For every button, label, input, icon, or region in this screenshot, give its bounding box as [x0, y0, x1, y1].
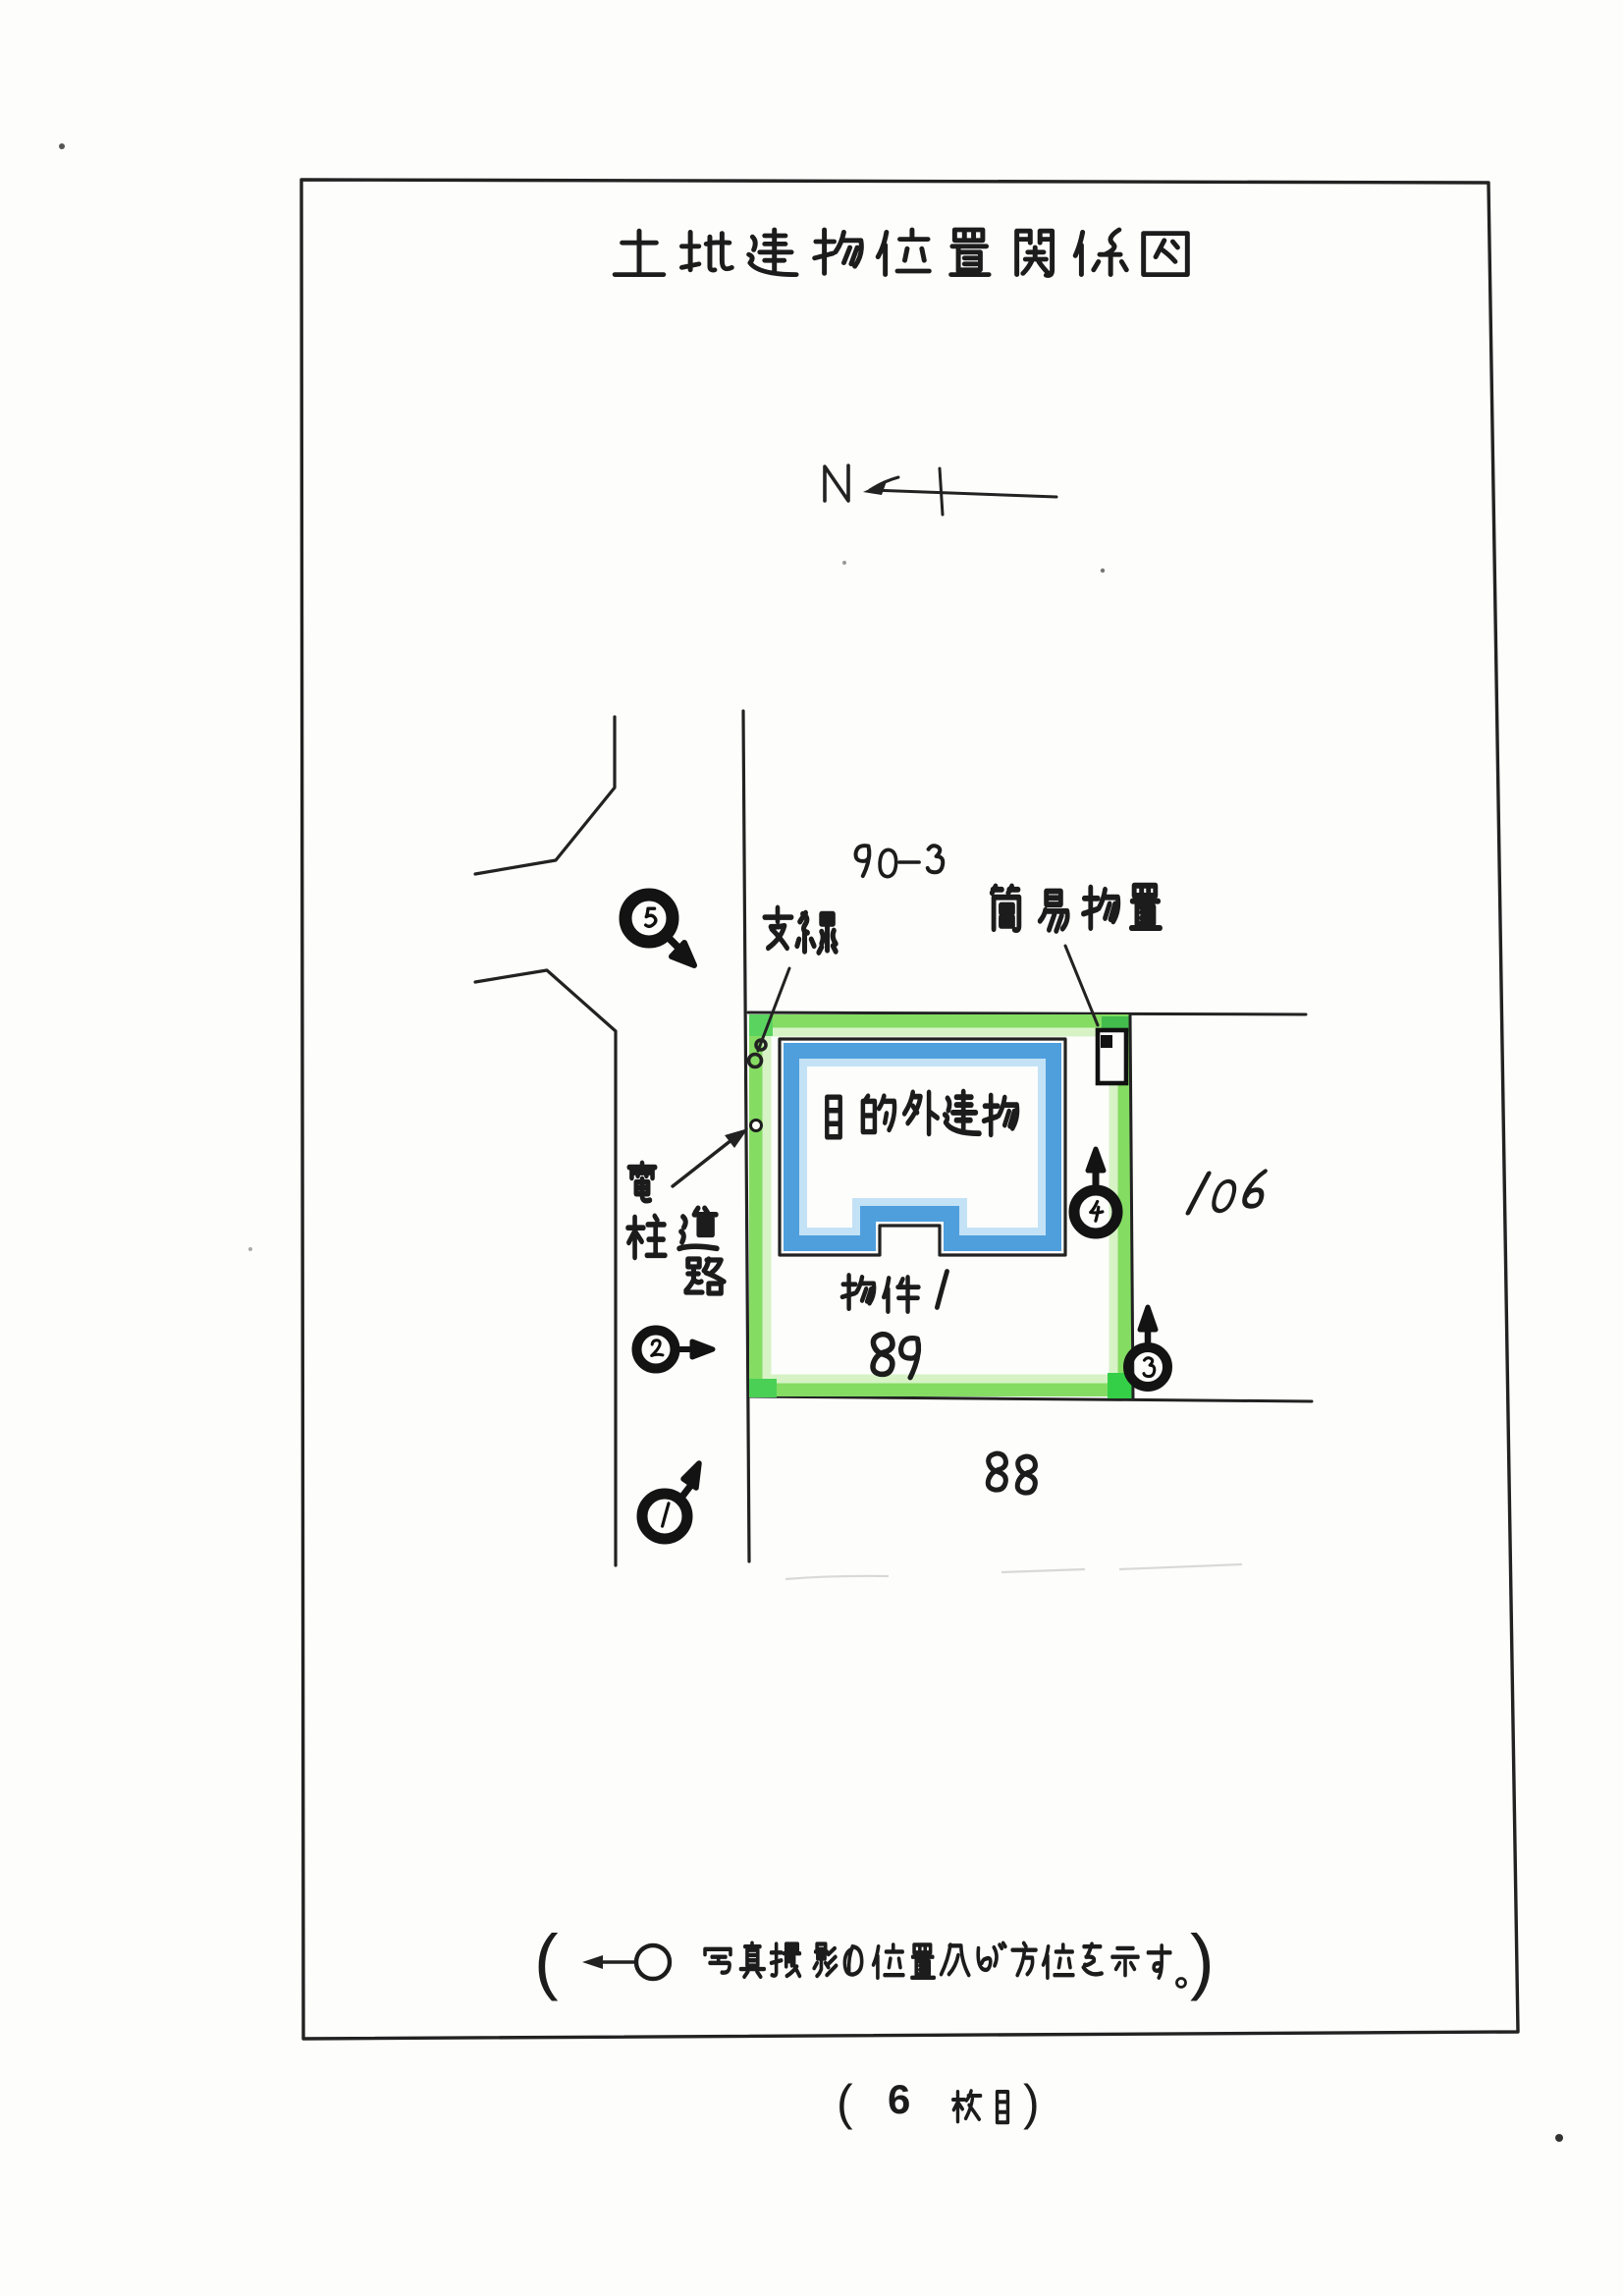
svg-text:(: ( — [837, 2075, 853, 2130]
svg-text:6: 6 — [888, 2076, 910, 2122]
svg-text:(: ( — [534, 1920, 559, 2001]
svg-text:): ) — [1190, 1920, 1215, 2001]
svg-text:): ) — [1023, 2075, 1040, 2130]
